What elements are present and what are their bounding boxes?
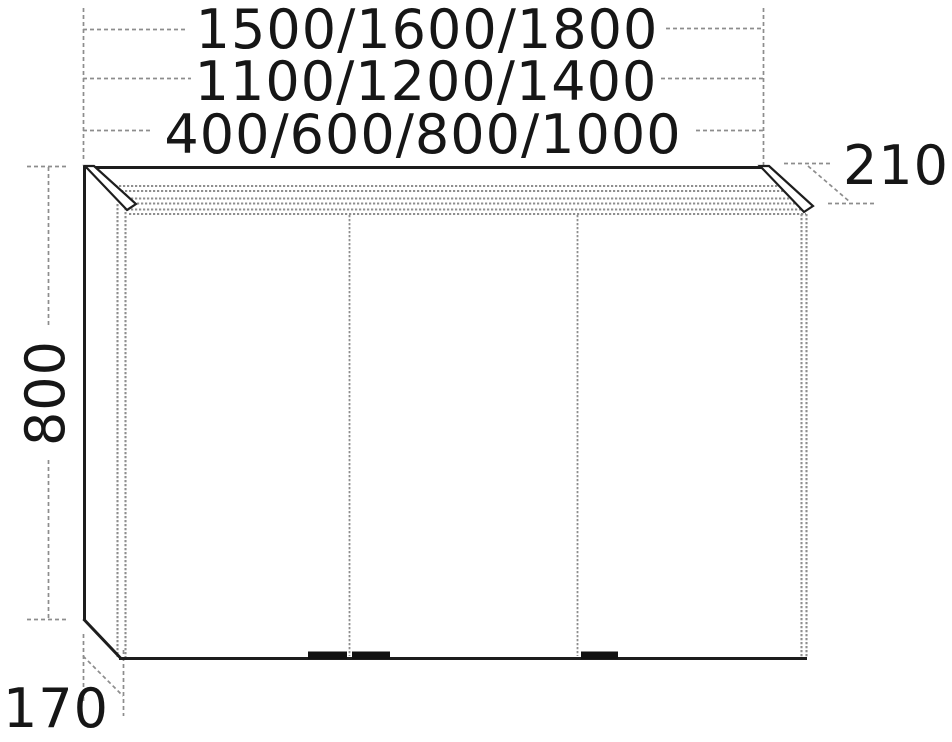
light-cornice-panel — [111, 186, 807, 657]
label-cornice-depth: 210 — [843, 134, 949, 197]
cabinet-outline — [84, 166, 814, 659]
handle-door3 — [581, 652, 618, 660]
label-body-depth: 170 — [3, 677, 109, 740]
handle-door2 — [352, 652, 390, 660]
label-height: 800 — [14, 340, 77, 446]
cornice-left-bevel — [85, 166, 136, 210]
cornice-right-bevel — [760, 166, 813, 212]
cabinet-bottom-left-depth-edge — [84, 619, 121, 658]
dimension-drawing-canvas: 1500/1600/1800 1100/1200/1400 400/600/80… — [0, 0, 952, 742]
handle-door1 — [308, 652, 347, 660]
mirror-cabinet-drawing: 1500/1600/1800 1100/1200/1400 400/600/80… — [0, 0, 952, 742]
label-width-row-bottom: 400/600/800/1000 — [164, 103, 681, 166]
